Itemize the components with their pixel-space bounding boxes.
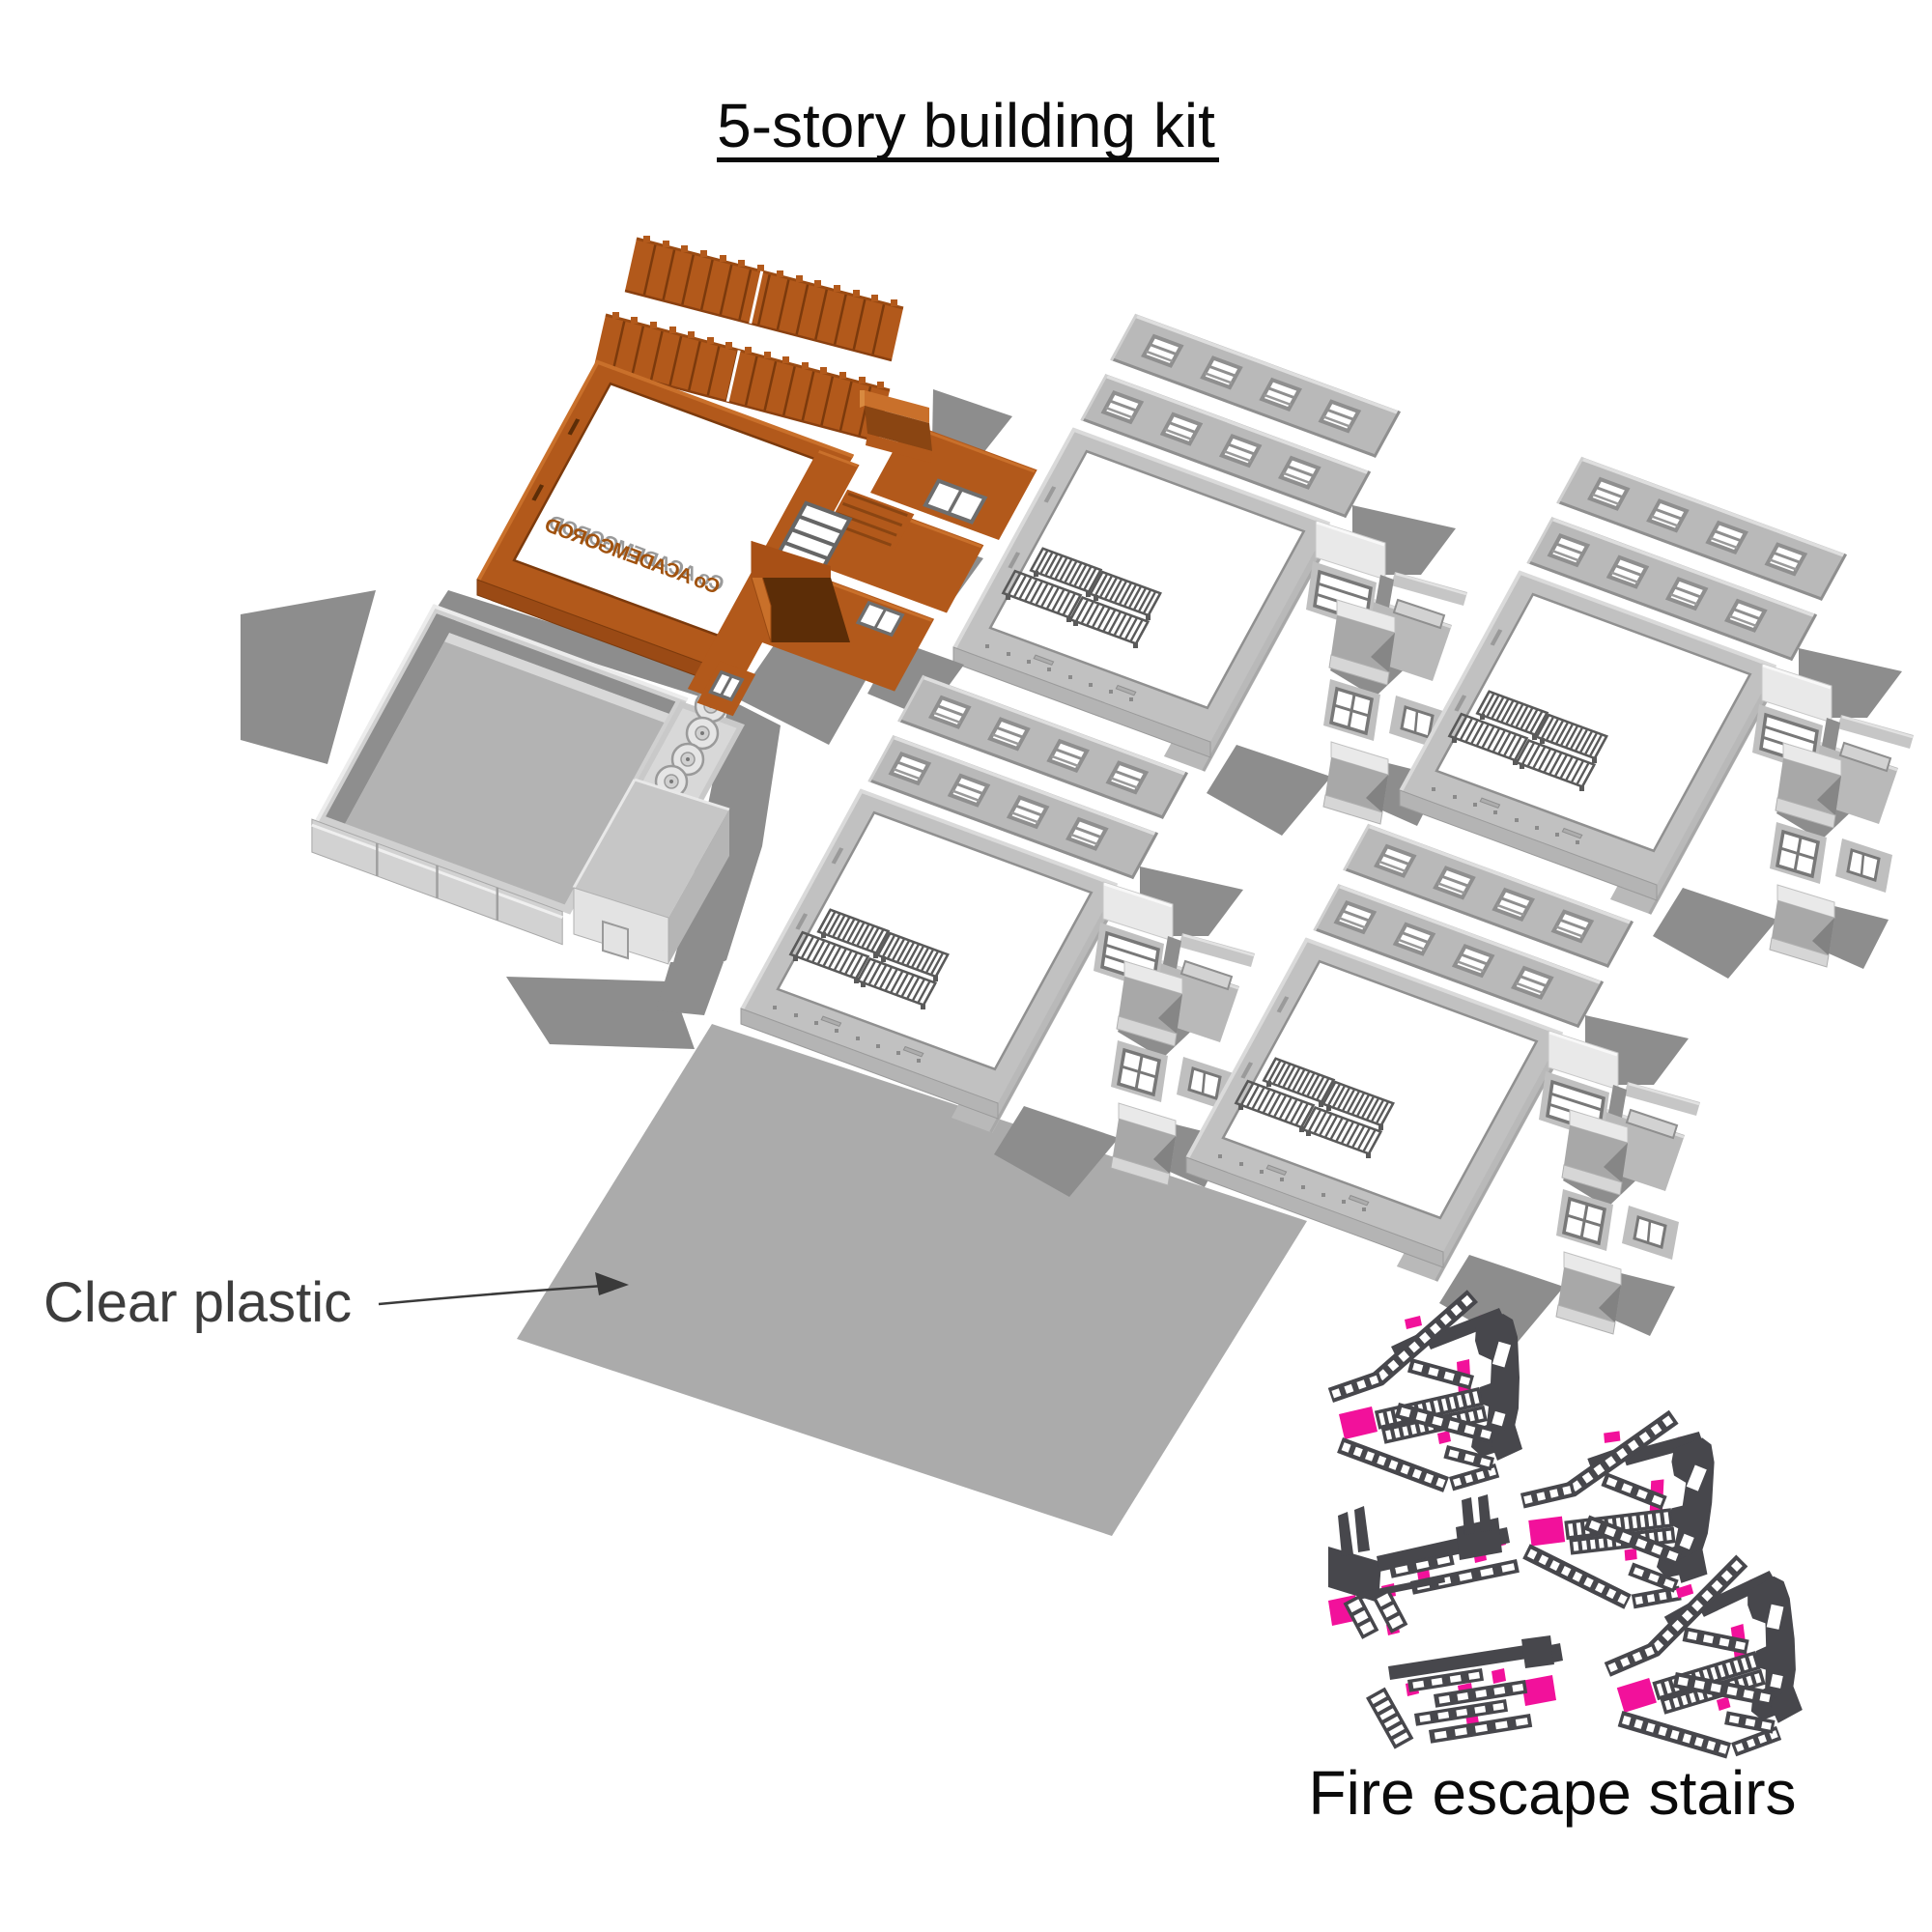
svg-text:5-story building kit: 5-story building kit (717, 91, 1215, 160)
svg-text:Fire escape stairs: Fire escape stairs (1308, 1758, 1796, 1828)
svg-text:Clear plastic: Clear plastic (43, 1271, 352, 1334)
